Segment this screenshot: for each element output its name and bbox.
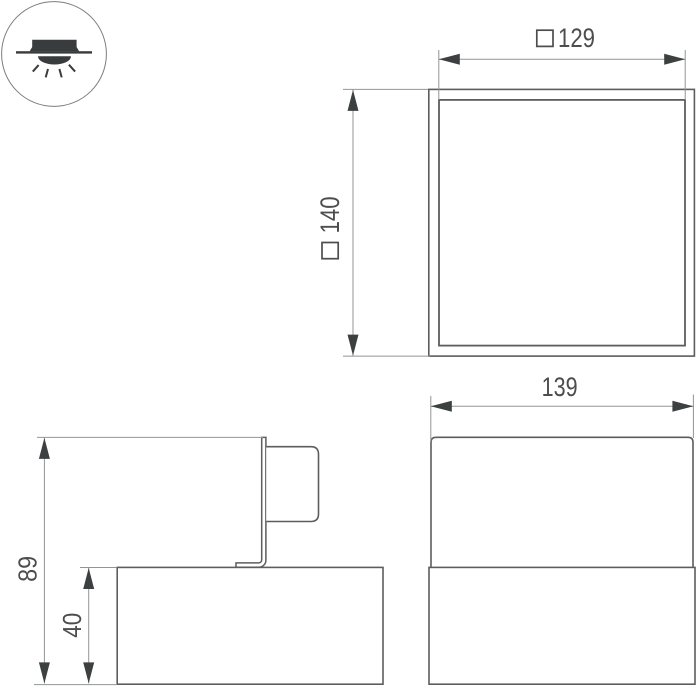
svg-text:140: 140 xyxy=(315,196,345,233)
svg-text:40: 40 xyxy=(57,613,87,638)
svg-text:129: 129 xyxy=(558,23,595,53)
svg-text:139: 139 xyxy=(542,372,578,402)
svg-text:89: 89 xyxy=(13,556,43,582)
